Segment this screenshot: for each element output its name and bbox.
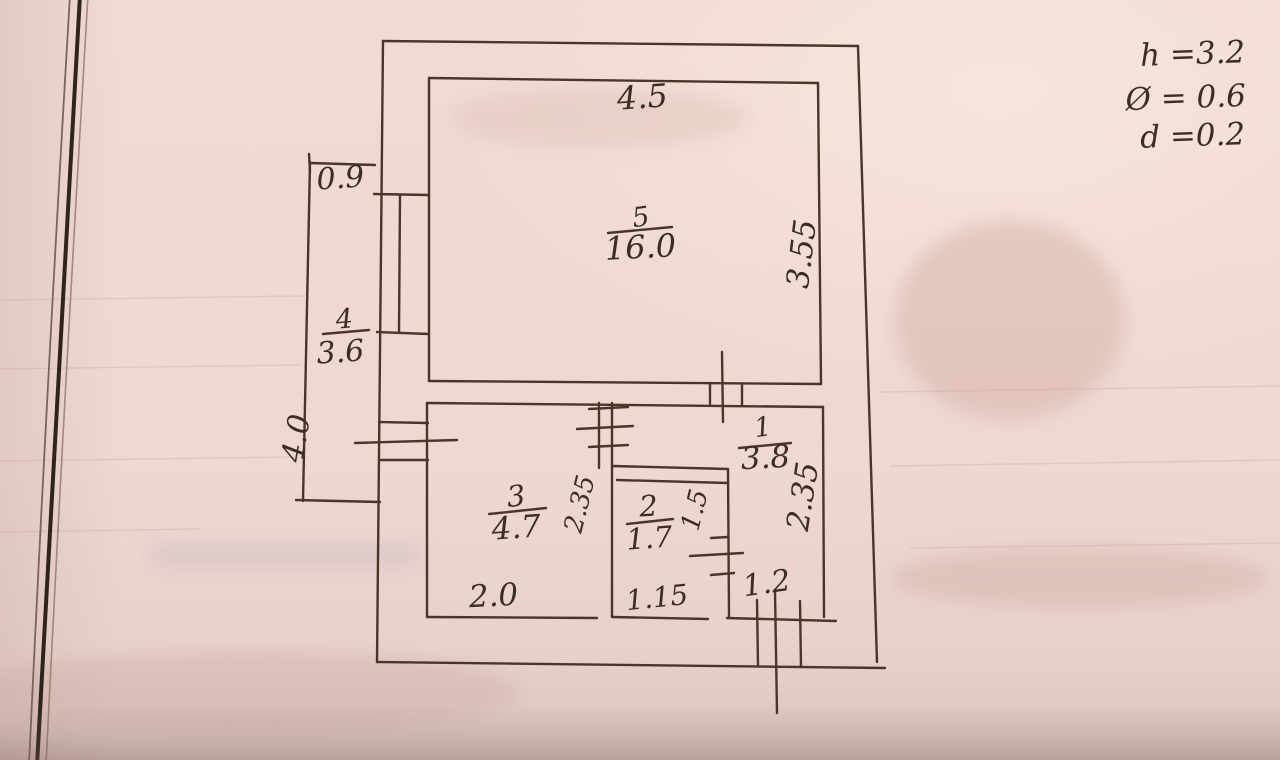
notes-block: h =3.2 Ø = 0.6 d =0.2 <box>1124 34 1247 156</box>
room-3-area: 4.7 <box>489 508 542 547</box>
label-fraction-lines <box>323 227 791 524</box>
page-edge <box>29 0 88 760</box>
dim-room2-height: 1.5 <box>676 486 715 533</box>
room-2-area: 1.7 <box>625 519 674 556</box>
dim-balcony-width: 0.9 <box>315 159 365 197</box>
note-depth: d =0.2 <box>1140 116 1246 156</box>
room-4-area: 3.6 <box>315 333 365 371</box>
room-5-area: 16.0 <box>604 226 677 268</box>
note-diameter: Ø = 0.6 <box>1124 78 1247 118</box>
dim-room5-height: 3.55 <box>780 217 824 290</box>
dim-room3-width: 2.0 <box>467 577 519 616</box>
note-height: h =3.2 <box>1140 34 1246 74</box>
room2-door <box>690 537 743 575</box>
dim-entrance-width: 1.2 <box>741 563 793 604</box>
dim-room5-width: 4.5 <box>615 76 669 118</box>
room5-door <box>710 352 742 422</box>
dim-balcony-height: 4.0 <box>275 412 318 466</box>
floor-plan-drawing: 5 16.0 4 3.6 3 4.7 2 1.7 1 3.8 4.5 3.55 … <box>0 0 1280 760</box>
paper-smudges <box>0 88 1270 734</box>
entrance-door <box>757 591 801 713</box>
room3-door <box>577 407 633 447</box>
dim-room2-width: 1.15 <box>624 578 689 617</box>
room3-window <box>355 422 457 460</box>
room-2-number: 2 <box>637 489 658 524</box>
room-4-number: 4 <box>333 303 354 335</box>
room-1-area: 3.8 <box>740 439 791 478</box>
dim-room3-height: 2.35 <box>558 472 601 536</box>
